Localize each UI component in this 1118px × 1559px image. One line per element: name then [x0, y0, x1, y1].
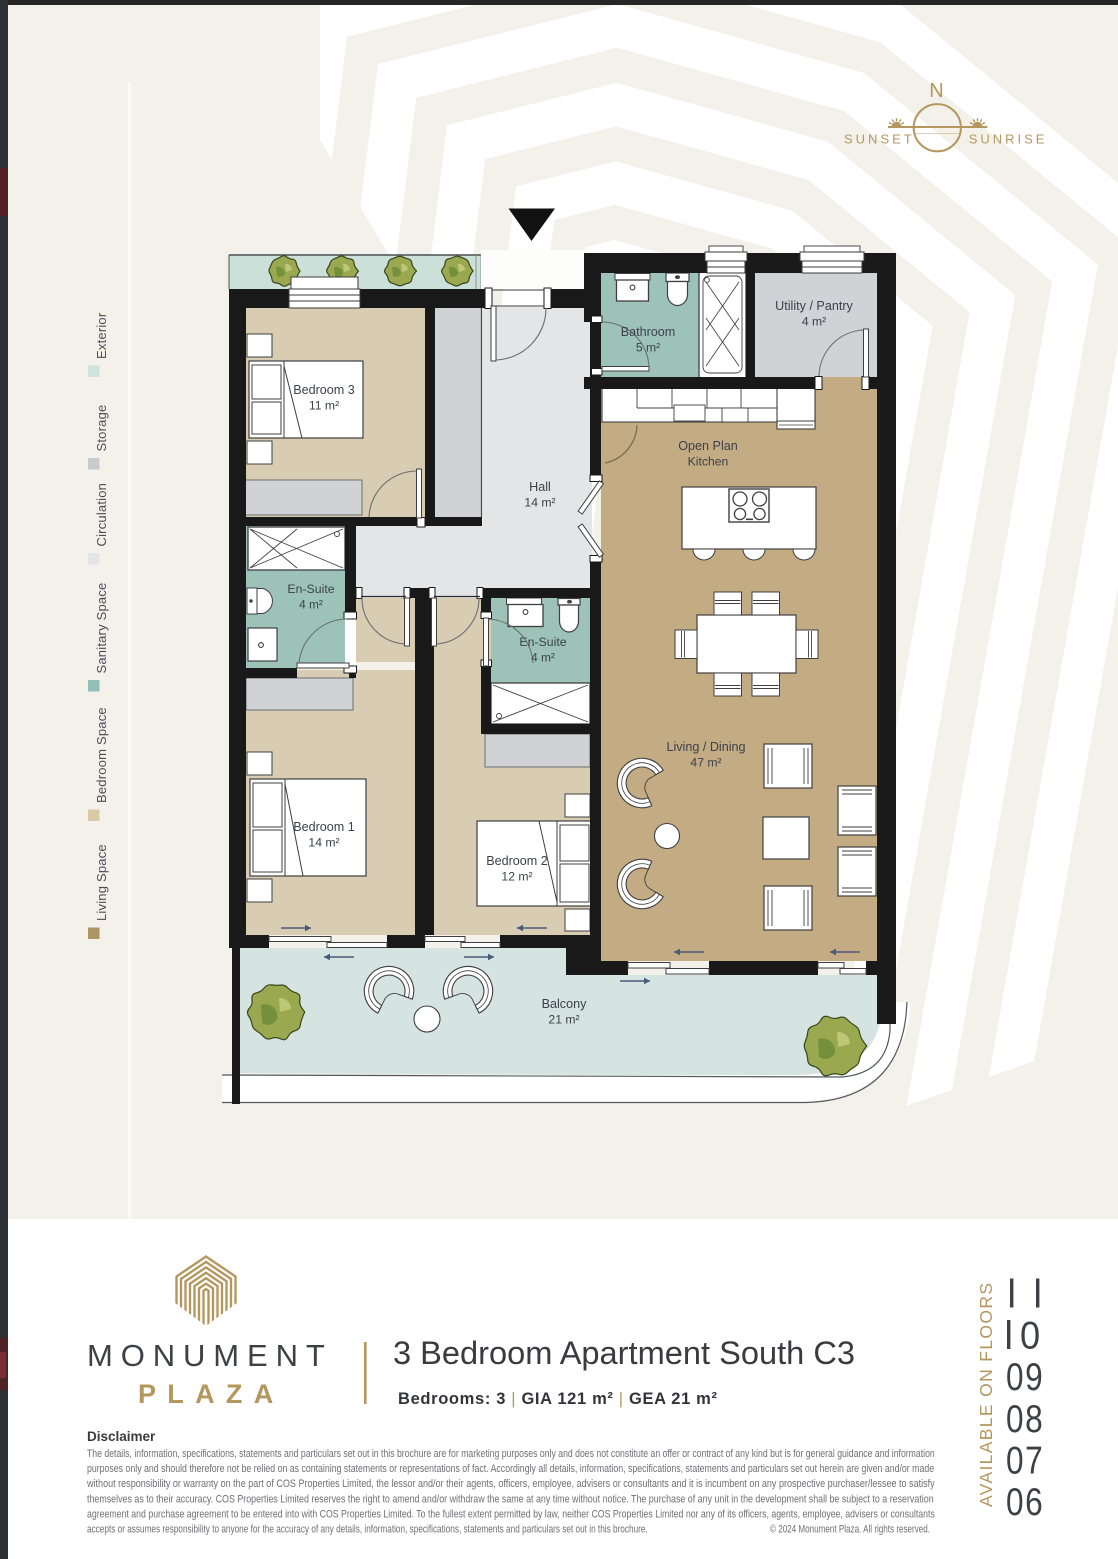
svg-text:Storage: Storage [94, 405, 109, 452]
svg-text:12 m²: 12 m² [501, 870, 532, 884]
svg-text:11 m²: 11 m² [309, 399, 339, 413]
svg-text:Bedroom 3: Bedroom 3 [293, 383, 355, 397]
svg-text:14 m²: 14 m² [308, 836, 339, 850]
svg-text:Bedroom Space: Bedroom Space [94, 707, 109, 803]
svg-text:AVAILABLE ON FLOORS: AVAILABLE ON FLOORS [976, 1282, 996, 1507]
svg-text:Living Space: Living Space [94, 844, 109, 921]
svg-text:En-Suite: En-Suite [287, 582, 334, 596]
svg-text:Utility / Pantry: Utility / Pantry [775, 299, 853, 313]
svg-text:Kitchen: Kitchen [688, 455, 729, 469]
svg-text:4 m²: 4 m² [299, 598, 323, 612]
svg-text:14 m²: 14 m² [524, 496, 555, 510]
svg-text:08: 08 [1006, 1397, 1044, 1441]
svg-text:Open Plan: Open Plan [678, 439, 738, 453]
svg-text:© 2024 Monument Plaza. All r: © 2024 Monument Plaza. All rights reserv… [770, 1523, 930, 1535]
svg-text:Living / Dining: Living / Dining [666, 740, 745, 754]
svg-text:Bedrooms: 3 | GIA 121 m² | GEA: Bedrooms: 3 | GIA 121 m² | GEA 21 m² [398, 1390, 718, 1408]
svg-text:The details, information, spec: The details, information, specifications… [87, 1448, 935, 1460]
svg-text:Bathroom: Bathroom [621, 325, 676, 339]
svg-text:Disclaimer: Disclaimer [87, 1429, 156, 1444]
svg-text:accepts or assumes responsibil: accepts or assumes responsibility to any… [87, 1524, 648, 1536]
svg-text:Exterior: Exterior [94, 312, 109, 359]
svg-text:Bedroom 1: Bedroom 1 [293, 820, 355, 834]
svg-text:5 m²: 5 m² [636, 341, 660, 355]
svg-text:21 m²: 21 m² [548, 1013, 579, 1027]
svg-text:4 m²: 4 m² [531, 651, 555, 665]
svg-text:06: 06 [1006, 1480, 1044, 1524]
svg-text:Bedroom 2: Bedroom 2 [486, 854, 548, 868]
svg-text:SUNSET: SUNSET [844, 132, 915, 147]
svg-text:4 m²: 4 m² [802, 315, 826, 329]
svg-text:0: 0 [1020, 1313, 1040, 1356]
svg-text:agreement and purchase agreeme: agreement and purchase agreement to be e… [87, 1509, 935, 1521]
svg-text:07: 07 [1006, 1439, 1044, 1483]
svg-text:En-Suite: En-Suite [519, 635, 566, 649]
svg-text:47 m²: 47 m² [690, 756, 721, 770]
svg-text:Circulation: Circulation [94, 483, 109, 547]
svg-text:MONUMENT: MONUMENT [87, 1338, 333, 1373]
svg-text:Sanitary Space: Sanitary Space [94, 583, 109, 674]
svg-text:Hall: Hall [529, 480, 551, 494]
svg-text:themselves as to their accurac: themselves as to their accuracy. COS Pro… [87, 1494, 934, 1506]
svg-text:without responsibility or warr: without responsibility or warranty on th… [86, 1479, 935, 1491]
svg-text:Balcony: Balcony [542, 997, 588, 1011]
svg-text:3 Bedroom Apartment South C3: 3 Bedroom Apartment South C3 [393, 1335, 855, 1371]
svg-text:SUNRISE: SUNRISE [969, 132, 1048, 147]
svg-text:N: N [929, 80, 943, 102]
svg-text:PLAZA: PLAZA [138, 1379, 285, 1409]
svg-text:09: 09 [1006, 1355, 1044, 1399]
svg-text:purposes only and should there: purposes only and should therefore not b… [87, 1463, 935, 1475]
